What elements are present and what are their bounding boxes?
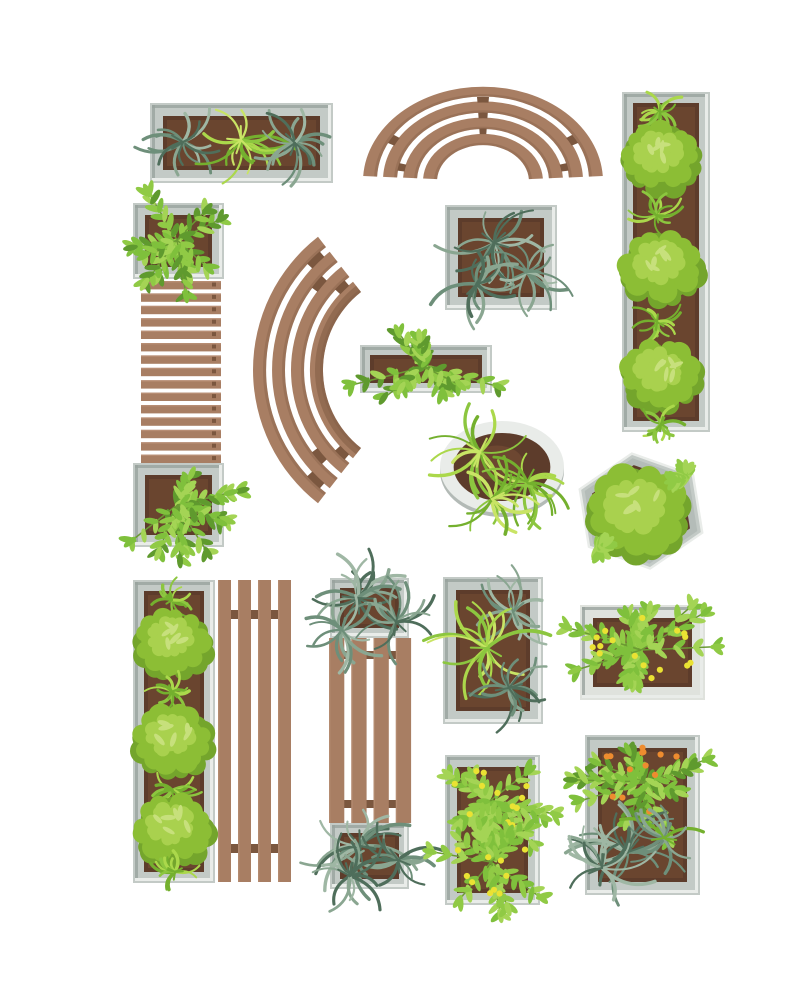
planter-tallleft-bottom-plants [130,577,218,889]
bench-straight-left [141,281,221,463]
illustration-canvas [0,0,800,1000]
planter-tallright-plants [617,92,708,442]
landscape-elements-illustration [0,0,800,1000]
